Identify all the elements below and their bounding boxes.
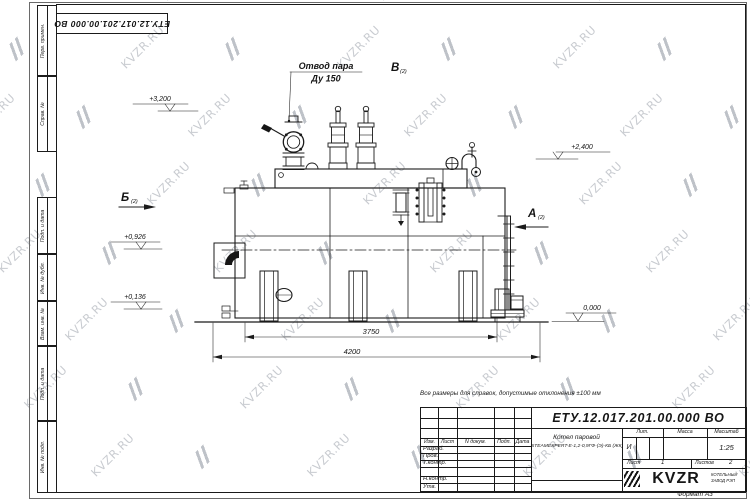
title-block-line (636, 437, 637, 459)
tb-header-data: Дата (514, 438, 531, 446)
title-block-line (421, 467, 531, 468)
tb-scale-label: Масштаб (707, 428, 746, 437)
title-block-line (649, 437, 650, 459)
tb-row-tkontr: Т.контр. (423, 460, 446, 467)
tb-sheet-value: 1 (661, 459, 664, 468)
corner-doc-number: ЕТУ.12.017.201.00.000 ВО (54, 19, 170, 29)
logo-caption-2: ЗАВОД РЭП (711, 478, 745, 483)
format-label: Формат А3 (640, 491, 750, 498)
corner-doc-number-stamp: ЕТУ.12.017.201.00.000 ВО (56, 13, 168, 34)
product-name: Котел паровой (531, 434, 622, 441)
title-block-line (514, 408, 515, 491)
logo-caption-1: КОТЕЛЬНЫЙ (711, 472, 745, 477)
title-block-line (622, 459, 746, 460)
title-block-line (494, 408, 495, 491)
kvzr-spring-icon (624, 471, 640, 487)
tb-header-list: Лист (438, 438, 457, 446)
margin-label: Инв. № дубл. (40, 262, 46, 294)
kvzr-logo-text: KVZR (642, 468, 710, 490)
tb-lit-value: И (622, 437, 636, 459)
title-block-line (421, 418, 531, 419)
margin-cell-podp-data-1: Подп. и дата (37, 197, 57, 255)
margin-cell-podp-data-2: Подп. и дата (37, 345, 57, 422)
tb-row-utv: Утв. (423, 484, 436, 491)
margin-label: Взам. инв. № (40, 307, 46, 339)
tb-sheets-value: 2 (729, 459, 732, 468)
margin-label: Инв. № подл. (40, 440, 46, 472)
tb-sheets-label: Листов (695, 459, 714, 468)
margin-label: Справ. № (40, 102, 46, 126)
product-model: STEAMEXPERT-Е-1,2-0,9ГФ-(Э)-КБ (ЖК) (531, 444, 622, 449)
margin-cell-inv-podl: Инв. № подл. (37, 420, 57, 493)
tb-header-izm: Изм. (421, 438, 438, 446)
margin-cell-inv-dubl: Инв. № дубл. (37, 253, 57, 302)
title-doc-number: ЕТУ.12.017.201.00.000 ВО (531, 408, 746, 428)
tb-sheet-label: Лист (627, 459, 640, 468)
margin-label: Подп. и дата (40, 367, 46, 399)
tb-lit-label: Лит. (622, 428, 663, 437)
tb-scale-value: 1:25 (707, 437, 746, 459)
tb-row-razrab: Разраб. (423, 446, 444, 453)
margin-cell-perv-primen: Перв. примен. (37, 5, 57, 77)
title-block-line (457, 408, 458, 491)
title-block-line (691, 459, 692, 468)
margin-cell-vzam-inv: Взам. инв. № (37, 300, 57, 347)
tb-header-ndokum: N докум. (457, 438, 494, 446)
title-block-line (531, 480, 622, 481)
reference-note: Все размеры для справок, допустимые откл… (420, 390, 700, 397)
tb-header-podp: Подп. (494, 438, 514, 446)
margin-cell-sprav-no: Справ. № (37, 75, 57, 152)
title-block: ЕТУ.12.017.201.00.000 ВО Изм. Лист N док… (420, 407, 747, 492)
margin-label: Подп. и дата (40, 210, 46, 242)
tb-mass-label: Масса (663, 428, 707, 437)
tb-row-prov: Пров. (423, 453, 438, 460)
title-block-line (421, 483, 531, 484)
tb-row-nkontr: Н.контр. (423, 476, 448, 483)
margin-label: Перв. примен. (40, 24, 46, 58)
